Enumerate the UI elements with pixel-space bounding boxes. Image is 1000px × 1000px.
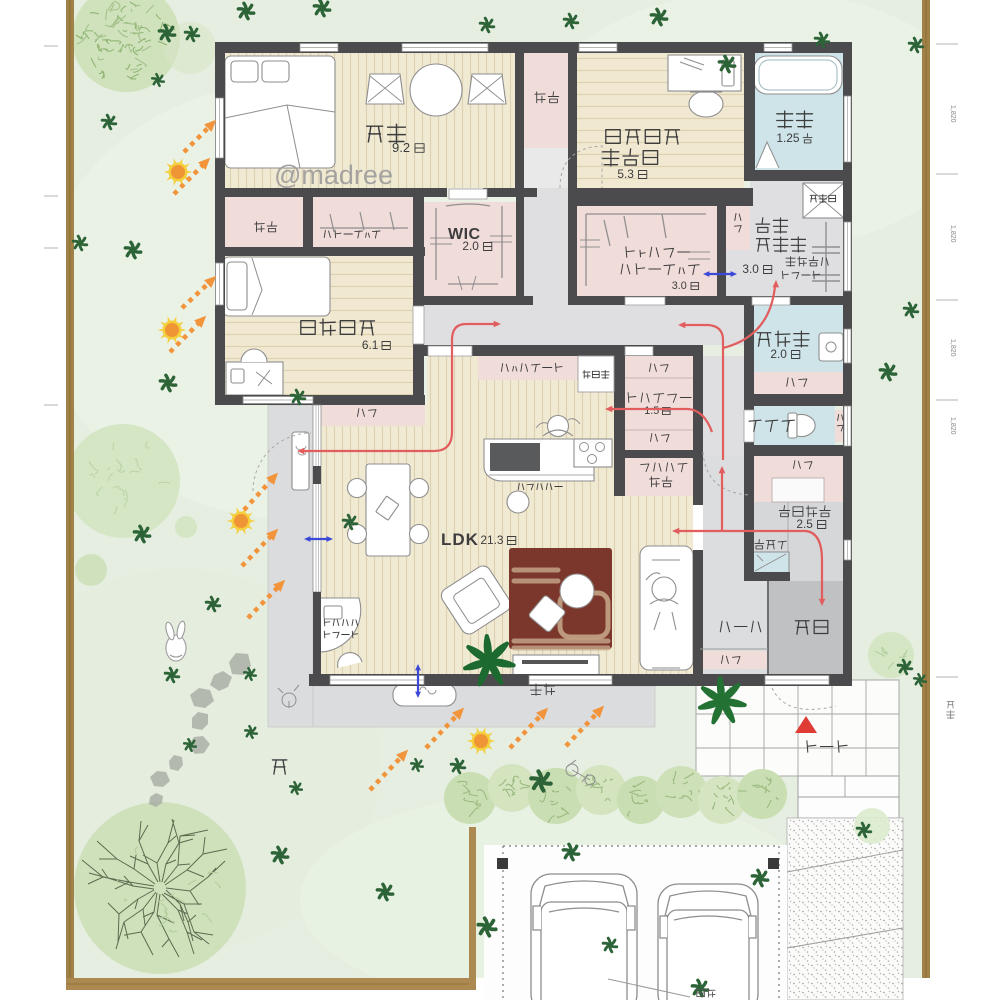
svg-text:6.1: 6.1 [362, 338, 379, 352]
svg-text:1,820: 1,820 [949, 105, 956, 123]
svg-text:2.0: 2.0 [770, 347, 787, 361]
svg-text:1,820: 1,820 [949, 339, 956, 357]
svg-text:1.25: 1.25 [776, 131, 800, 145]
svg-text:LDK: LDK [441, 530, 479, 549]
svg-text:5.3: 5.3 [617, 167, 634, 181]
svg-text:2.5: 2.5 [796, 517, 813, 531]
svg-text:@madree: @madree [274, 160, 393, 190]
svg-text:1.5: 1.5 [644, 405, 659, 417]
svg-text:3.0: 3.0 [672, 280, 687, 292]
svg-text:1,820: 1,820 [949, 225, 956, 243]
svg-text:1,820: 1,820 [949, 417, 956, 435]
svg-text:3.0: 3.0 [742, 262, 759, 276]
svg-text:2.0: 2.0 [462, 239, 479, 253]
svg-text:21.3: 21.3 [480, 533, 504, 547]
svg-text:9.2: 9.2 [392, 140, 410, 155]
